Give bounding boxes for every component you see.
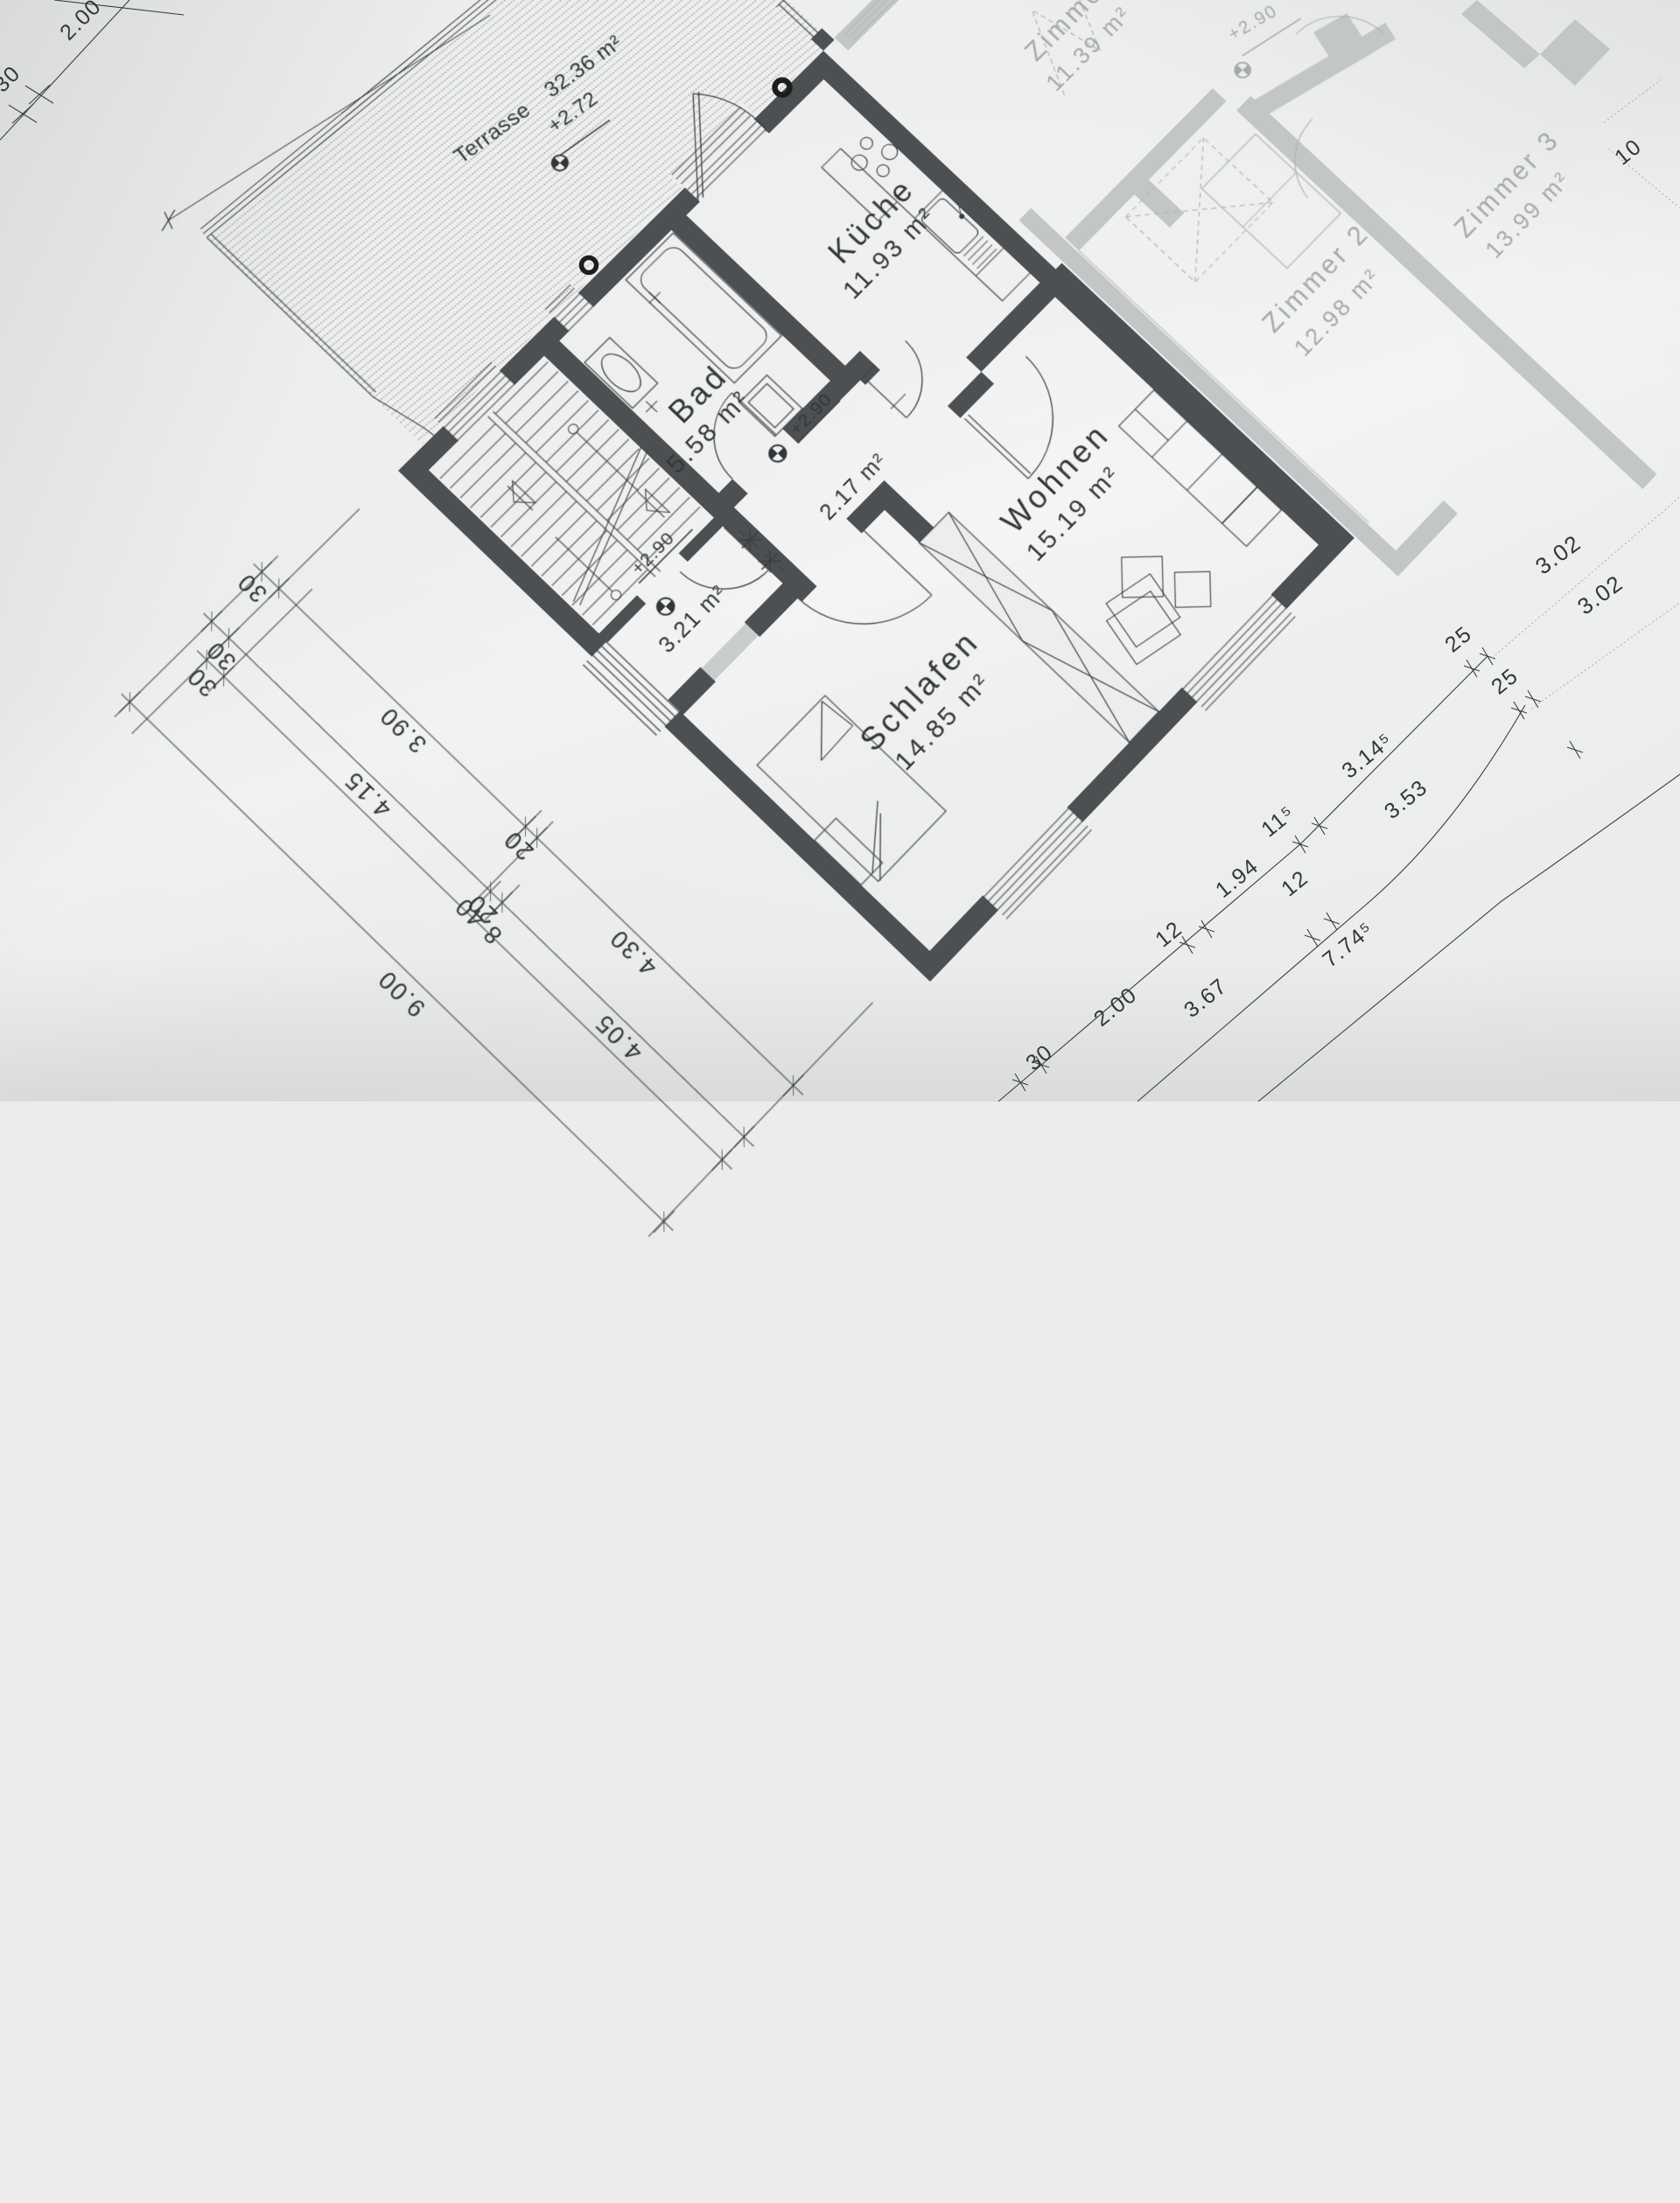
svg-text:7.74⁵: 7.74⁵	[1318, 917, 1378, 973]
svg-text:2.00: 2.00	[55, 0, 106, 45]
svg-text:3.67: 3.67	[1179, 974, 1232, 1023]
svg-text:11⁵: 11⁵	[1256, 801, 1299, 842]
svg-text:3.53: 3.53	[1380, 775, 1432, 824]
svg-text:3.02: 3.02	[1530, 529, 1585, 580]
svg-text:1.94: 1.94	[1211, 854, 1263, 903]
svg-text:25: 25	[1487, 663, 1523, 699]
svg-text:2.00: 2.00	[1089, 983, 1142, 1032]
svg-text:12: 12	[1151, 916, 1187, 952]
svg-text:30: 30	[1021, 1039, 1058, 1075]
svg-text:10: 10	[1610, 134, 1647, 170]
svg-text:3.02: 3.02	[1572, 570, 1627, 620]
svg-text:12: 12	[1277, 865, 1313, 901]
svg-text:25: 25	[1440, 621, 1477, 657]
svg-text:30: 30	[0, 61, 25, 98]
